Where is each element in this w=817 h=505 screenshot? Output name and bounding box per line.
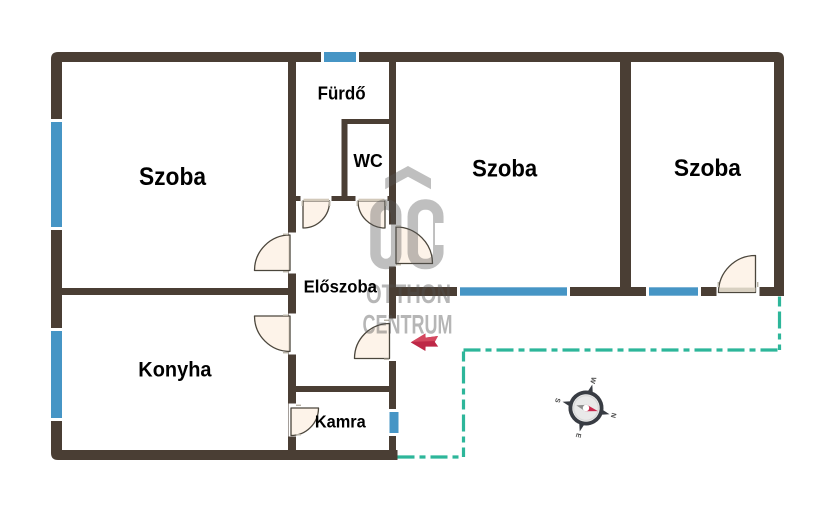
svg-text:Szoba: Szoba — [674, 155, 741, 182]
svg-text:Szoba: Szoba — [139, 163, 207, 191]
svg-text:Kamra: Kamra — [315, 412, 366, 432]
svg-text:CENTRUM: CENTRUM — [363, 310, 453, 340]
svg-text:Fürdő: Fürdő — [318, 83, 366, 103]
svg-text:Konyha: Konyha — [138, 359, 211, 382]
svg-text:S: S — [553, 397, 561, 404]
svg-text:W: W — [588, 376, 597, 385]
svg-text:E: E — [574, 432, 582, 439]
svg-text:WC: WC — [353, 151, 382, 171]
svg-text:Szoba: Szoba — [472, 155, 537, 182]
svg-text:Előszoba: Előszoba — [304, 276, 377, 296]
svg-text:OTTHON: OTTHON — [366, 279, 451, 309]
svg-text:N: N — [609, 412, 617, 419]
